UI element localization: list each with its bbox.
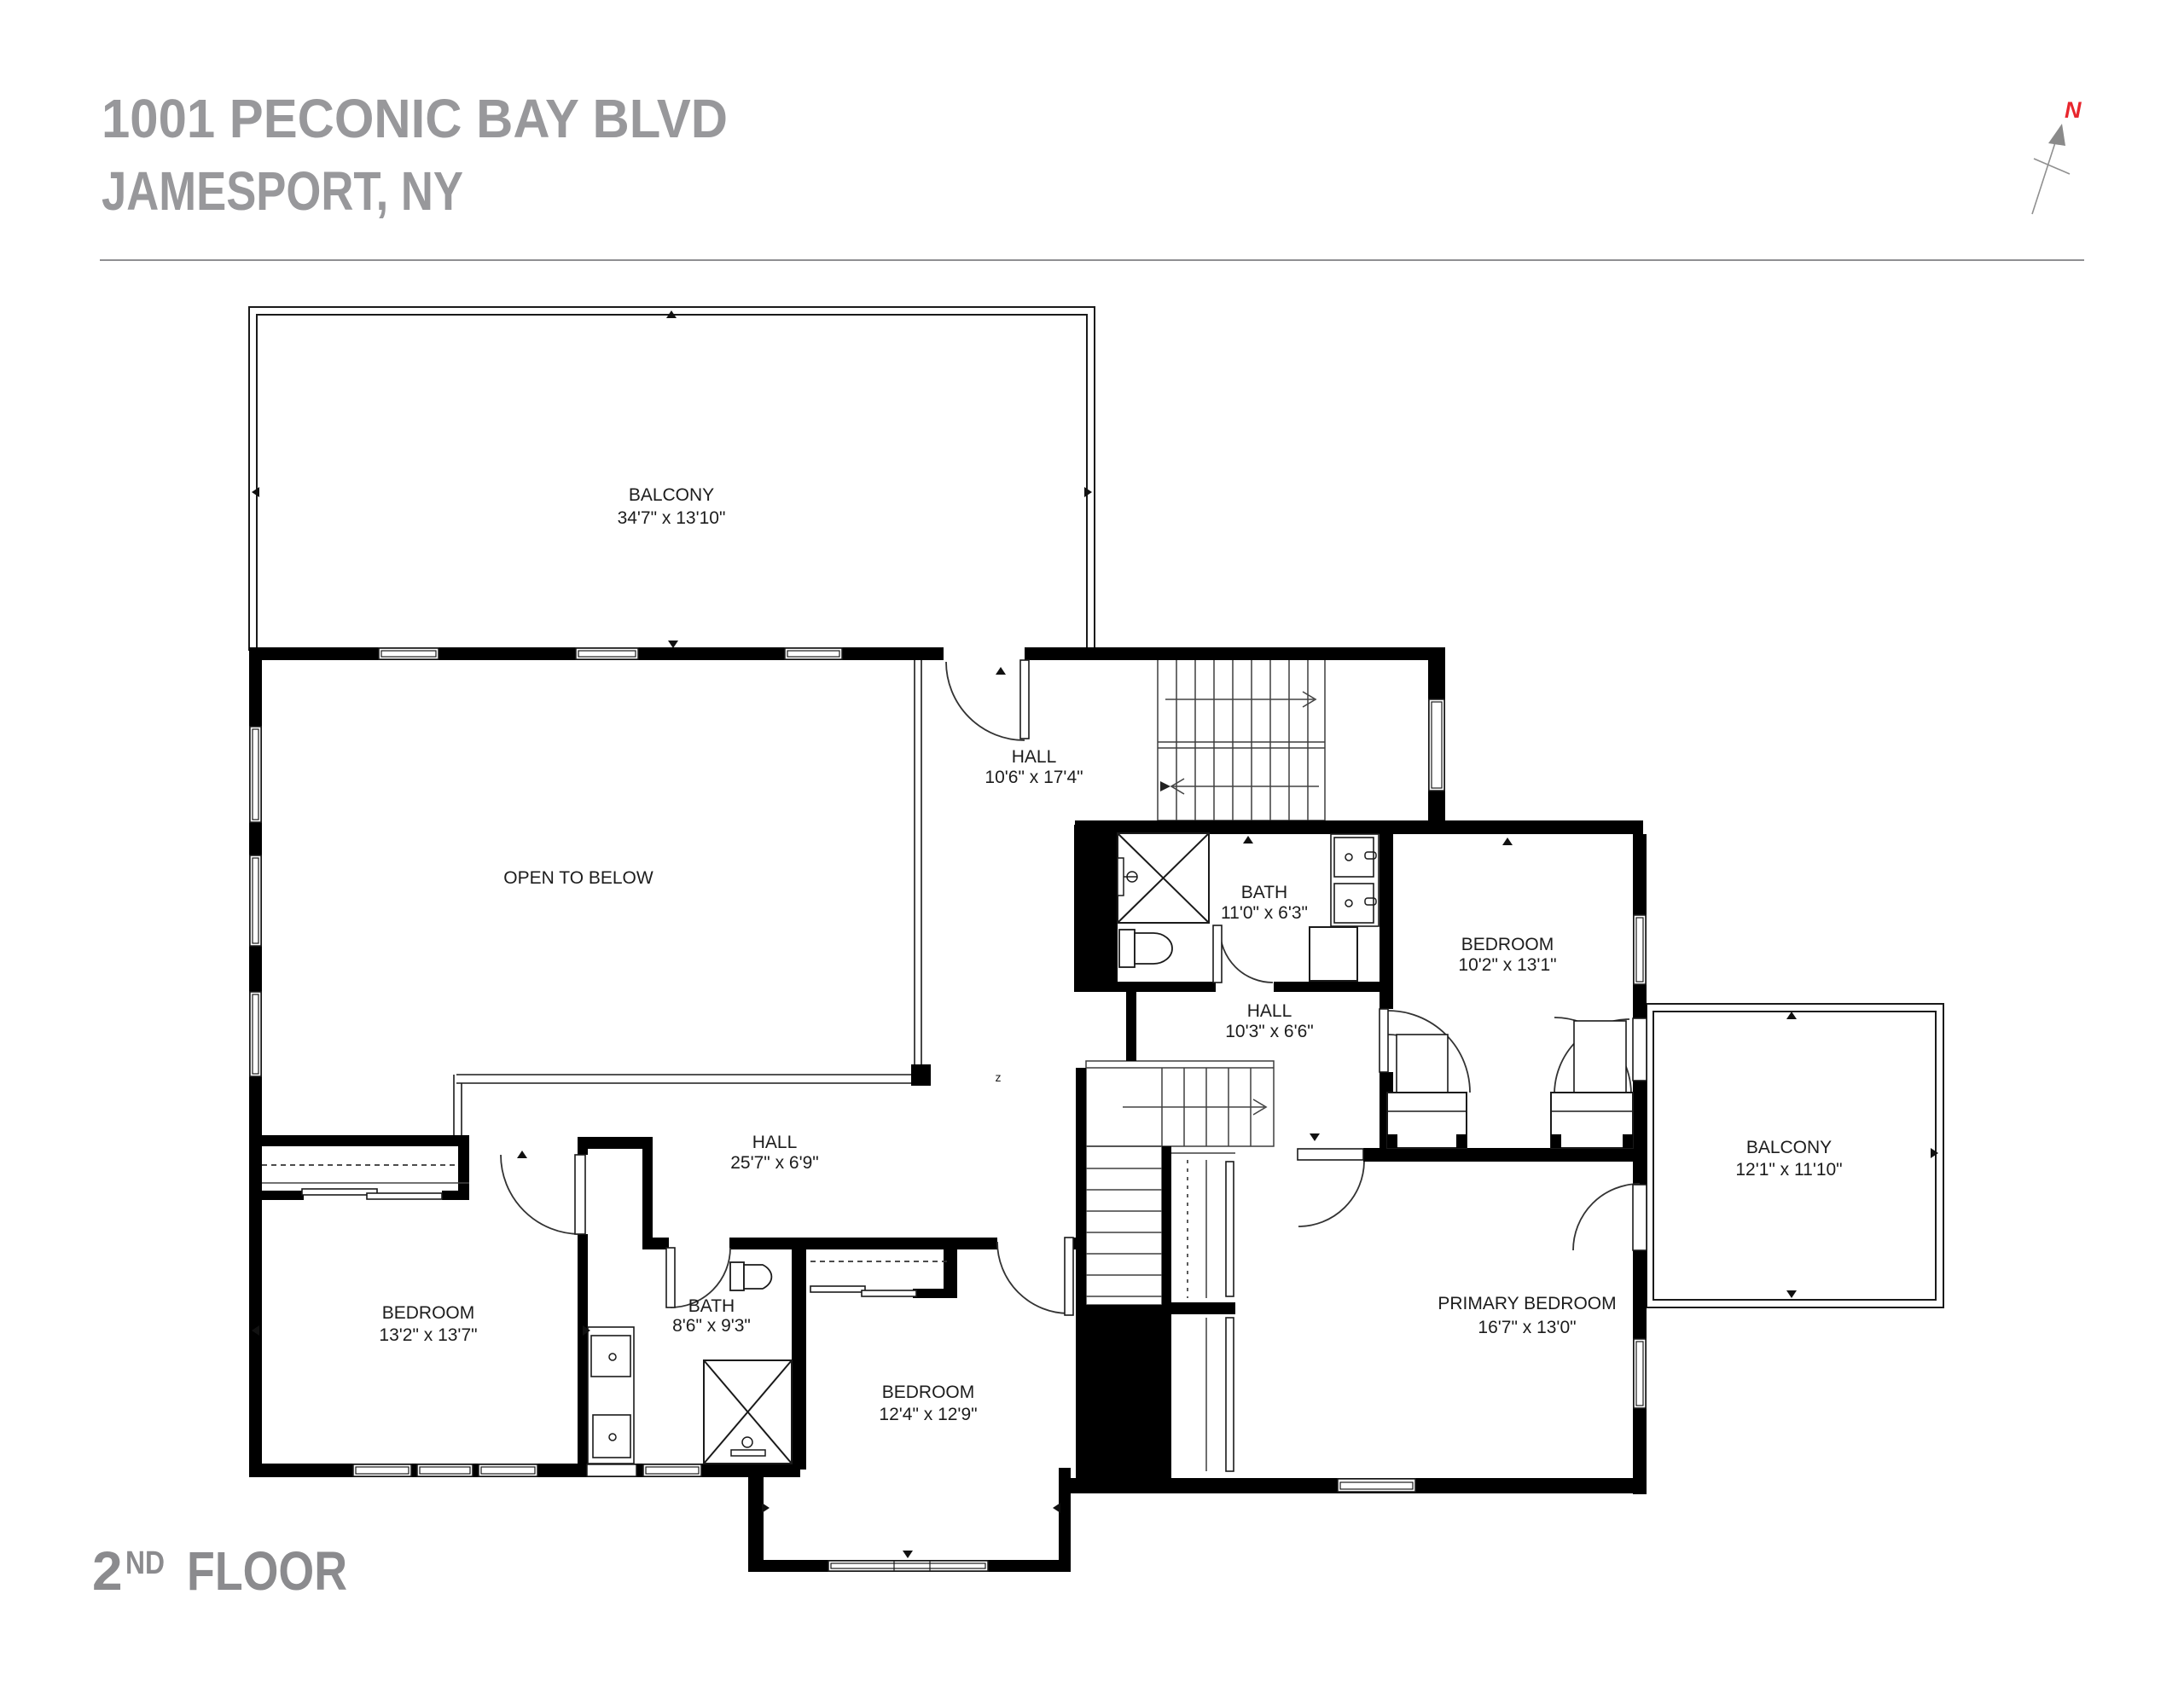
svg-text:BATH: BATH bbox=[1241, 883, 1287, 902]
svg-text:12'1" x 11'10": 12'1" x 11'10" bbox=[1735, 1160, 1842, 1180]
svg-text:BEDROOM: BEDROOM bbox=[1461, 935, 1554, 954]
svg-text:13'2" x 13'7": 13'2" x 13'7" bbox=[379, 1325, 477, 1345]
svg-text:HALL: HALL bbox=[1247, 1001, 1292, 1021]
svg-text:8'6" x 9'3": 8'6" x 9'3" bbox=[672, 1316, 751, 1336]
svg-text:HALL: HALL bbox=[752, 1133, 798, 1152]
svg-text:10'3" x 6'6": 10'3" x 6'6" bbox=[1225, 1022, 1314, 1041]
svg-text:BEDROOM: BEDROOM bbox=[382, 1303, 475, 1323]
svg-text:2: 2 bbox=[92, 1540, 123, 1602]
svg-text:11'0" x 6'3": 11'0" x 6'3" bbox=[1221, 903, 1308, 923]
svg-text:BEDROOM: BEDROOM bbox=[882, 1383, 975, 1402]
svg-text:PRIMARY BEDROOM: PRIMARY BEDROOM bbox=[1438, 1294, 1616, 1313]
svg-text:z: z bbox=[996, 1070, 1002, 1084]
svg-text:N: N bbox=[2065, 97, 2082, 123]
svg-text:ND: ND bbox=[125, 1545, 165, 1581]
svg-text:BALCONY: BALCONY bbox=[1746, 1138, 1832, 1157]
svg-text:1001 PECONIC BAY BLVD: 1001 PECONIC BAY BLVD bbox=[102, 88, 728, 149]
svg-text:10'6" x 17'4": 10'6" x 17'4" bbox=[985, 768, 1083, 787]
svg-text:FLOOR: FLOOR bbox=[187, 1540, 347, 1602]
svg-text:JAMESPORT, NY: JAMESPORT, NY bbox=[102, 160, 463, 222]
svg-text:12'4" x 12'9": 12'4" x 12'9" bbox=[879, 1405, 977, 1424]
svg-text:34'7" x 13'10": 34'7" x 13'10" bbox=[618, 508, 726, 528]
svg-text:10'2" x 13'1": 10'2" x 13'1" bbox=[1458, 955, 1556, 975]
svg-text:HALL: HALL bbox=[1012, 747, 1057, 767]
svg-text:BATH: BATH bbox=[688, 1296, 735, 1316]
svg-text:BALCONY: BALCONY bbox=[629, 485, 714, 505]
svg-text:25'7" x 6'9": 25'7" x 6'9" bbox=[730, 1153, 819, 1173]
svg-text:16'7" x 13'0": 16'7" x 13'0" bbox=[1478, 1318, 1576, 1337]
svg-text:OPEN TO BELOW: OPEN TO BELOW bbox=[503, 868, 653, 888]
